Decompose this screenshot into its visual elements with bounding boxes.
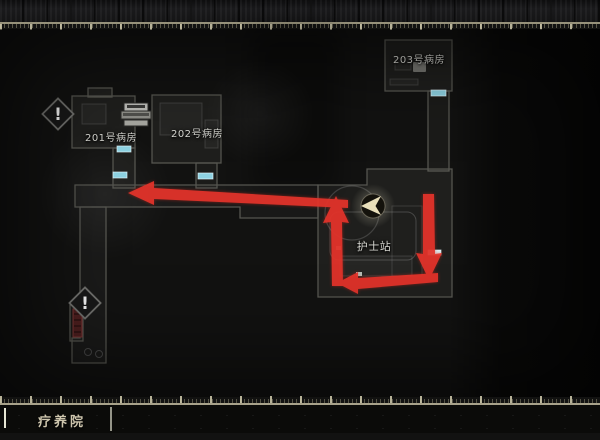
nurse-station-label: 护士站 — [357, 238, 392, 254]
floor-info-bar: 疗养院 — [0, 405, 600, 433]
exclamation-marker-upper: ! — [42, 98, 73, 129]
map-ruler-bottom — [0, 397, 600, 405]
exclamation-glyph: ! — [81, 294, 89, 314]
item-box-icon — [121, 103, 151, 126]
exclamation-glyph: ! — [54, 105, 62, 125]
bar-edge-tick — [4, 408, 6, 428]
floor-name-label: 疗养院 — [38, 411, 86, 430]
ruler-ticks-major — [0, 396, 600, 403]
map-viewport[interactable]: ! ! 201号病房 202号病房 203号病房 护士站 — [0, 29, 600, 397]
door-marker — [198, 173, 213, 179]
room-203-label: 203号病房 — [393, 51, 445, 66]
door-marker — [117, 146, 131, 152]
room-201-label: 201号病房 — [85, 129, 137, 144]
bar-divider — [110, 407, 112, 431]
map-canvas: ! ! — [0, 0, 600, 440]
door-marker — [431, 90, 446, 96]
room-201-south-corridor — [113, 148, 135, 188]
player-marker — [351, 184, 395, 228]
room-203-south-corridor — [428, 91, 449, 171]
game-map-screen: ! ! 201号病房 202号病房 203号病房 护士站 疗养院 — [0, 0, 600, 440]
room-202-label: 202号病房 — [171, 125, 223, 140]
door-marker — [113, 172, 127, 178]
